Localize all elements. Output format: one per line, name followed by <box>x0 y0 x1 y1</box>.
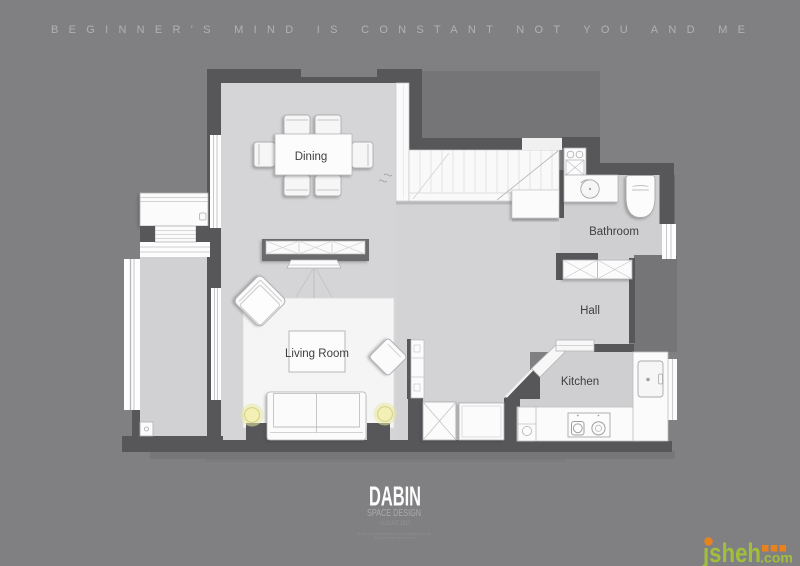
svg-text:attitude and make your dream t: attitude and make your dream true <box>374 535 417 540</box>
svg-text:Dining: Dining <box>295 151 328 163</box>
svg-text:AUGUST 2017: AUGUST 2017 <box>380 520 411 527</box>
svg-text:Bathroom: Bathroom <box>589 226 639 238</box>
svg-text:.com: .com <box>760 551 793 566</box>
svg-text:Kitchen: Kitchen <box>561 376 599 388</box>
svg-text:SPACE DESIGN: SPACE DESIGN <box>367 508 421 519</box>
svg-text:Hall: Hall <box>580 305 600 317</box>
svg-text:DABIN: DABIN <box>369 481 421 512</box>
svg-text:Living Room: Living Room <box>285 348 349 360</box>
